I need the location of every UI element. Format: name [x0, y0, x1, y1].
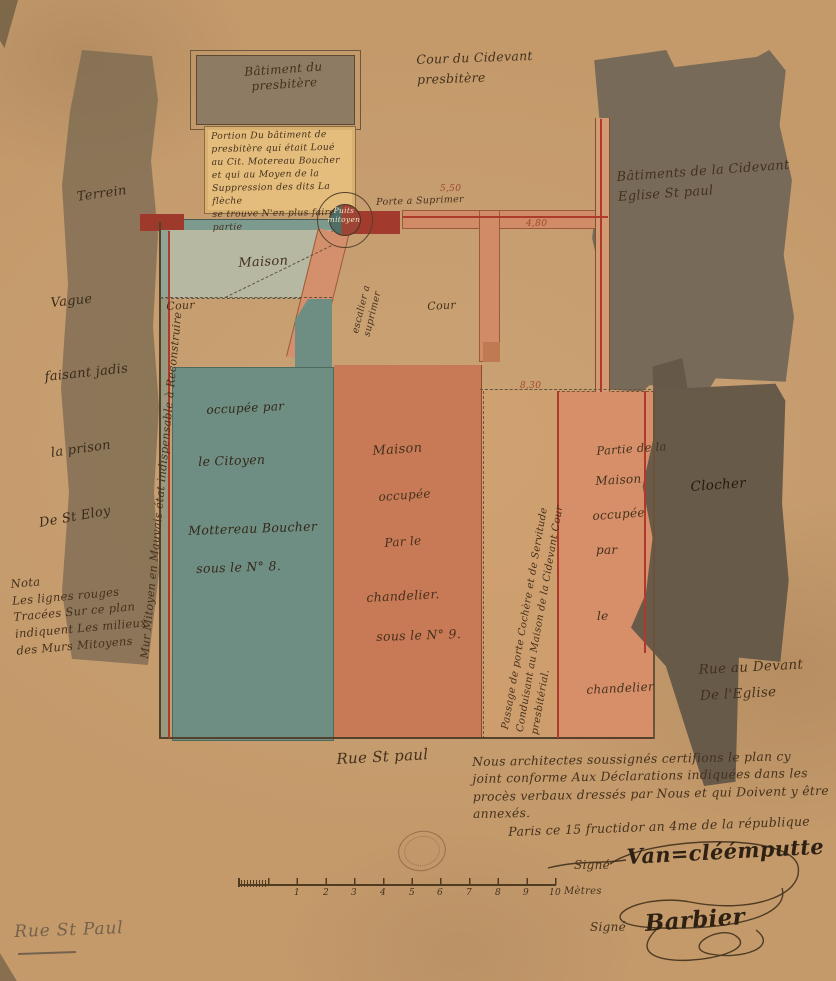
cour-left-label: Cour	[166, 299, 195, 314]
signe-label-2: Signé	[590, 920, 626, 935]
plan-canvas: Bâtiment du presbitère Portion Du bâtime…	[0, 0, 836, 981]
certification-text: Nous architectes soussignés certifions l…	[472, 748, 836, 824]
right-parcel-line-5: le	[597, 609, 609, 624]
red-line-top-corridor	[402, 216, 608, 218]
top-corridor-wall	[402, 210, 610, 229]
scale-number-1: 1	[294, 888, 300, 899]
scale-number-8: 8	[495, 888, 501, 899]
green-parcel-main	[172, 367, 334, 741]
right-parcel-line-4: par	[596, 543, 617, 558]
orange-parcel-line-3: Par le	[384, 533, 422, 550]
scale-bar-ticks	[268, 878, 557, 885]
red-line-right-wall	[600, 119, 602, 392]
scale-number-2: 2	[323, 888, 329, 899]
porte-supprimer-label: Porte a Suprimer	[376, 193, 486, 208]
pencil-street-note: Rue St Paul	[14, 918, 124, 943]
corner-wash-bottom-left	[0, 950, 24, 981]
signe-label-1: Signé	[574, 858, 610, 873]
right-parcel-line-2: Maison	[595, 472, 642, 489]
green-parcel-line-2: le Citoyen	[198, 452, 265, 470]
dimension-8-30: 8,30	[520, 381, 541, 392]
cour-right-wall	[479, 210, 500, 362]
orange-parcel-main	[334, 365, 482, 739]
maison-pale-label: Maison	[238, 253, 289, 271]
cour-wall-notch	[483, 342, 500, 362]
scale-number-5: 5	[409, 888, 415, 899]
rue-devant-label: Rue au Devant De l'Eglise	[698, 650, 836, 709]
cour-center-label: Cour	[427, 299, 456, 314]
scale-number-3: 3	[351, 888, 357, 899]
green-parcel-line-4: sous le N° 8.	[196, 558, 281, 576]
church-buildings-mass	[588, 50, 794, 392]
dimension-4-80: 4,80	[526, 219, 547, 230]
corner-wash-top-left	[0, 0, 18, 48]
red-line-clocher-edge	[644, 391, 646, 653]
right-vertical-wall	[595, 118, 610, 392]
plan-bottom-boundary	[160, 737, 654, 739]
scale-bar-hatch	[238, 880, 268, 887]
rue-st-paul-street-label: Rue St paul	[336, 745, 429, 768]
scale-number-6: 6	[437, 888, 443, 899]
scale-unit-label: Mètres	[564, 886, 602, 898]
scale-number-9: 9	[523, 888, 529, 899]
dimension-5-50: 5,50	[440, 184, 461, 195]
nota-note: Nota Les lignes rouges Tracées Sur ce pl…	[10, 562, 177, 659]
puits-label: Puits mitoyen	[324, 206, 364, 225]
orange-parcel-line-5: sous le N° 9.	[376, 626, 461, 644]
red-wall-block-left	[140, 214, 184, 231]
scale-number-4: 4	[380, 888, 386, 899]
pencil-note-underline	[18, 951, 76, 955]
cour-cidevant-label: Cour du Cidevant presbitère	[416, 44, 577, 90]
scale-number-7: 7	[466, 888, 472, 899]
scale-number-10: 10	[549, 888, 561, 899]
